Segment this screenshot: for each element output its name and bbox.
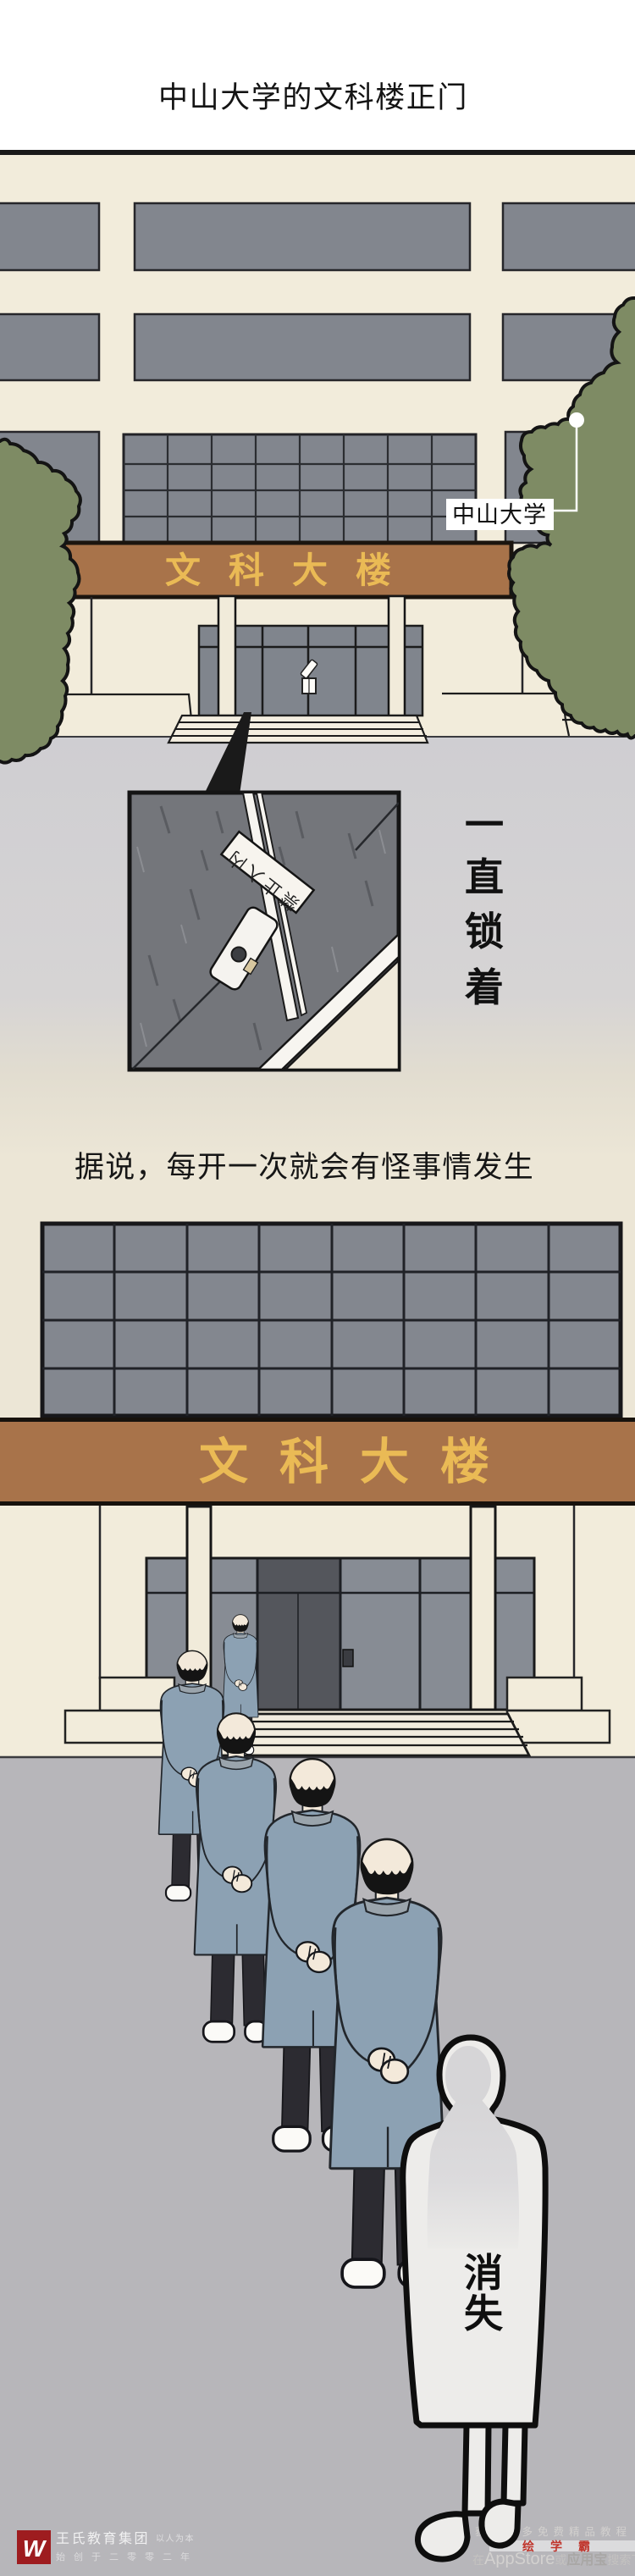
svg-text:王氏教育集团: 王氏教育集团 xyxy=(56,2531,150,2546)
svg-text:文科大楼: 文科大楼 xyxy=(199,1434,521,1490)
svg-text:直: 直 xyxy=(465,855,504,899)
svg-text:始创于二零零二年: 始创于二零零二年 xyxy=(56,2551,198,2562)
svg-text:锁: 锁 xyxy=(465,909,504,954)
svg-text:文科大楼: 文科大楼 xyxy=(165,550,419,590)
svg-text:W: W xyxy=(23,2535,47,2562)
svg-text:以人为本: 以人为本 xyxy=(156,2533,195,2544)
svg-text:失: 失 xyxy=(464,2291,504,2336)
svg-text:在AppStore或应用宝搜索下载: 在AppStore或应用宝搜索下载 xyxy=(472,2550,635,2568)
svg-text:中山大学: 中山大学 xyxy=(452,502,547,528)
svg-text:据说，每开一次就会有怪事情发生: 据说，每开一次就会有怪事情发生 xyxy=(75,1151,534,1184)
svg-text:着: 着 xyxy=(465,965,504,1009)
svg-text:一: 一 xyxy=(465,803,504,847)
svg-text:消: 消 xyxy=(464,2251,503,2295)
svg-text:中山大学的文科楼正门: 中山大学的文科楼正门 xyxy=(158,81,468,114)
